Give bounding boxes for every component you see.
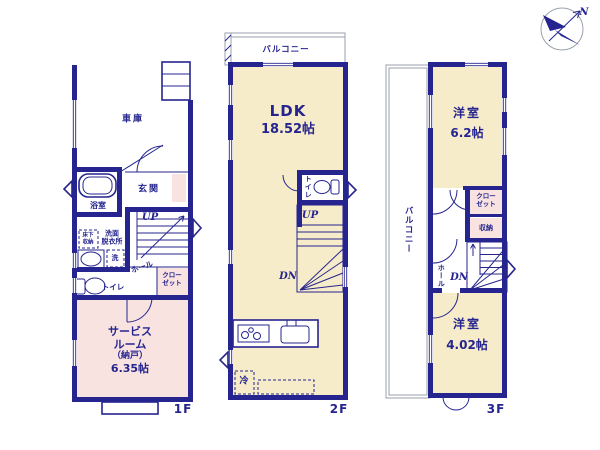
service-room-label: サービス ルーム （納戸） 6.35帖	[108, 325, 152, 375]
compass-icon	[541, 8, 583, 50]
washroom-label: 洗面 脱衣所	[102, 230, 123, 247]
floorplan-canvas: 車庫 玄関 浴室 洗面 脱衣所 床下 収納 洗 トイレ ホール UP クロー ゼ…	[0, 0, 600, 450]
up-2f-label: UP	[302, 210, 318, 222]
floorplan-drawing	[0, 0, 600, 450]
ldk-label: LDK	[270, 102, 307, 120]
toilet-icon-1f	[76, 278, 105, 294]
balcony-2f-label: バルコニー	[262, 45, 309, 55]
room-upper-label: 洋室	[453, 106, 481, 120]
garage-shutter-icon	[162, 62, 190, 100]
garage-label: 車庫	[122, 115, 144, 126]
window-swing-marker	[348, 182, 356, 198]
dn-3f-label: DN	[450, 272, 468, 284]
toilet-2f-label: トイレ	[304, 175, 312, 199]
balcony-3f-label: バルコニー	[403, 206, 413, 254]
up-1f-label: UP	[142, 212, 158, 224]
floor3-label: 3F	[487, 402, 506, 416]
underfloor-storage-label: 床下 収納	[82, 232, 93, 245]
north-arrow	[543, 15, 566, 31]
storage-label: 収納	[479, 224, 493, 232]
window-swing-marker	[507, 260, 515, 278]
room-lower-label: 洋室	[453, 317, 481, 331]
entrance-porch-step	[102, 402, 158, 414]
room-lower-size-label: 4.02帖	[446, 338, 488, 352]
closet-1f-label: クロー ゼット	[162, 272, 182, 288]
hall-door-arc	[433, 239, 457, 263]
window-swing-marker	[64, 181, 72, 197]
north-label: N	[579, 7, 588, 19]
shoe-cabinet	[172, 174, 186, 202]
hall-3f-label: ホール	[437, 264, 445, 288]
exterior-door-arc	[443, 397, 469, 410]
washer-label: 洗	[112, 254, 119, 262]
floor2-label: 2F	[330, 402, 349, 416]
bathtub-icon	[79, 174, 116, 197]
entrance-label: 玄関	[138, 185, 160, 196]
kitchen-counter-icon	[233, 320, 318, 347]
closet-3f-label: クロー ゼット	[476, 193, 496, 209]
entrance-door-arc	[137, 146, 163, 172]
floor1-label: 1F	[174, 402, 193, 416]
ldk-size-label: 18.52帖	[261, 122, 315, 138]
sink-icon	[78, 250, 104, 269]
window-swing-marker	[220, 352, 228, 368]
fridge-label: 冷	[239, 377, 248, 388]
dn-2f-label: DN	[279, 271, 297, 283]
room-upper-size-label: 6.2帖	[450, 126, 483, 140]
hall-door-arc	[433, 190, 457, 214]
window-swing-marker	[193, 219, 201, 237]
floor2-plan	[220, 33, 356, 400]
toilet-1f-label: トイレ	[102, 283, 125, 292]
stairs-3f	[467, 242, 507, 292]
bath-label: 浴室	[90, 201, 106, 211]
